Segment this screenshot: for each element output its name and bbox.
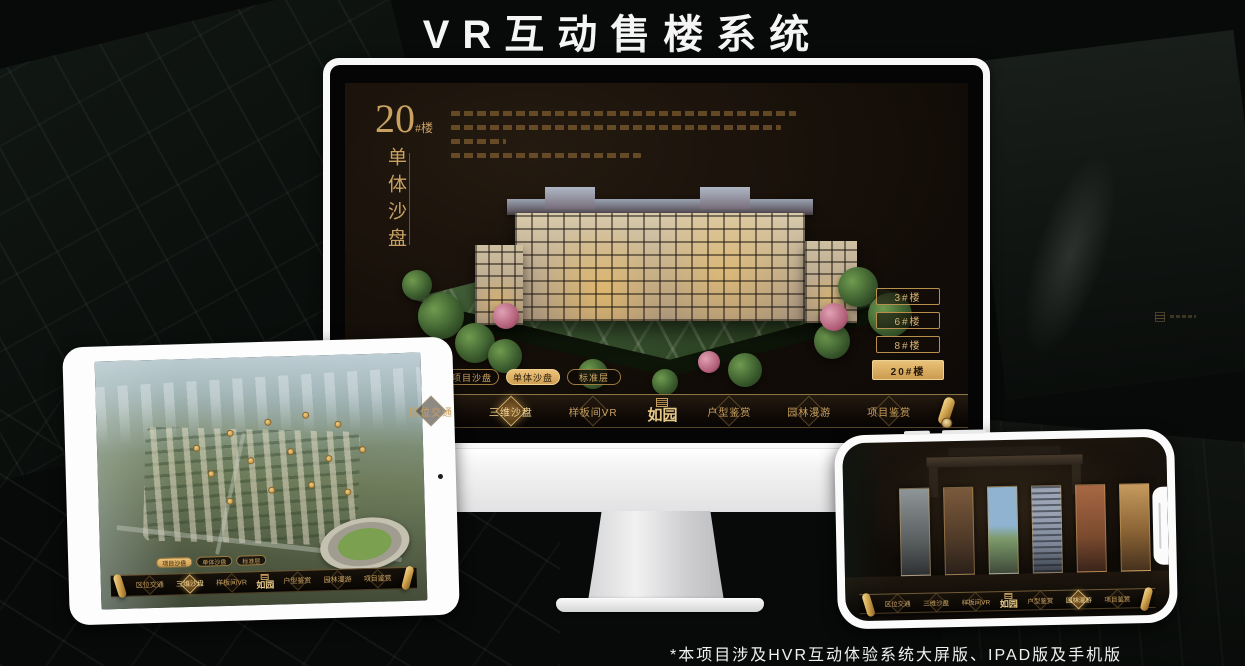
tree <box>728 353 762 387</box>
phone-notch <box>1152 487 1169 565</box>
building-button-6[interactable]: 6#楼 <box>876 312 940 329</box>
gallery-panel[interactable] <box>1119 483 1151 572</box>
nav-item-garden-roam[interactable]: 园林漫游 <box>1063 593 1095 606</box>
building-number-suffix: #楼 <box>415 121 433 135</box>
gallery-panel[interactable] <box>899 488 931 577</box>
gallery-panel[interactable] <box>943 487 975 576</box>
nav-item-3d-sandbox[interactable]: 三维沙盘 <box>483 402 539 421</box>
brand-logo: 如园 <box>647 398 677 424</box>
page-title: VR互动售楼系统 <box>0 2 1245 60</box>
gate-column <box>929 467 939 497</box>
nav-item-3d-sandbox[interactable]: 三维沙盘 <box>173 578 207 591</box>
tab-single-sandbox[interactable]: 单体沙盘 <box>506 369 560 385</box>
poster-canvas: VR互动售楼系统 20#楼 单体沙盘 <box>0 0 1245 666</box>
nav-item-location-traffic[interactable]: 区位交通 <box>133 579 167 592</box>
scroll-menu-icon[interactable] <box>937 396 956 426</box>
scroll-end-icon <box>112 573 127 598</box>
brand-logo-text: 如园 <box>647 408 677 424</box>
building-button-20[interactable]: 20#楼 <box>872 360 944 380</box>
tablet-mockup: 项目沙盘 单体沙盘 标准层 区位交通 三维沙盘 样板间VR 如园 户型鉴赏 园林… <box>62 337 460 626</box>
nav-item-floorplan[interactable]: 户型鉴赏 <box>280 575 314 588</box>
roof-tower <box>545 187 595 209</box>
gallery-panel[interactable] <box>987 486 1019 575</box>
nav-item-location-traffic[interactable]: 区位交通 <box>881 597 913 610</box>
footnote-text: *本项目涉及HVR互动体验系统大屏版、IPAD版及手机版 <box>670 641 1122 665</box>
nav-item-showroom-vr[interactable]: 样板间VR <box>959 595 994 608</box>
brand-logo: 如园 <box>1000 593 1018 609</box>
scroll-end-icon <box>1140 586 1154 611</box>
tablet-screen: 项目沙盘 单体沙盘 标准层 区位交通 三维沙盘 样板间VR 如园 户型鉴赏 园林… <box>95 352 428 609</box>
nav-item-floorplan[interactable]: 户型鉴赏 <box>1024 594 1056 607</box>
monitor-stand <box>588 511 724 601</box>
tab-standard-floor[interactable]: 标准层 <box>236 555 266 566</box>
phone-mockup: 区位交通 三维沙盘 样板间VR 如园 户型鉴赏 园林漫游 项目鉴赏 <box>834 428 1178 629</box>
gallery-panel[interactable] <box>1075 484 1107 573</box>
nav-item-garden-roam[interactable]: 园林漫游 <box>320 573 354 586</box>
estate-buildings <box>142 427 360 546</box>
phone-screen: 区位交通 三维沙盘 样板间VR 如园 户型鉴赏 园林漫游 项目鉴赏 <box>842 437 1170 622</box>
scroll-end-icon <box>861 592 876 617</box>
tree <box>402 270 432 300</box>
tree <box>652 369 678 395</box>
building-button-8[interactable]: 8#楼 <box>876 336 940 353</box>
description-line <box>451 139 506 144</box>
nav-item-location-traffic[interactable]: 区位交通 <box>403 402 459 421</box>
brand-logo-text: 如园 <box>1000 599 1018 609</box>
description-line <box>451 153 641 158</box>
building-button-3[interactable]: 3#楼 <box>876 288 940 305</box>
description-line <box>451 111 796 116</box>
building-selector: 3#楼 6#楼 8#楼 20#楼 <box>868 288 948 380</box>
tab-project-sandbox[interactable]: 项目沙盘 <box>156 557 192 568</box>
description-line <box>451 125 781 130</box>
building-number: 20 <box>375 96 415 141</box>
nav-item-showroom-vr[interactable]: 样板间VR <box>213 576 250 589</box>
description-paragraph <box>451 111 796 158</box>
seal-icon <box>656 398 668 407</box>
background-gold-text <box>1170 315 1196 318</box>
flowering-tree <box>698 351 720 373</box>
flowering-tree <box>493 303 519 329</box>
tree <box>488 339 522 373</box>
nav-item-project-view[interactable]: 项目鉴赏 <box>861 402 917 421</box>
nav-item-garden-roam[interactable]: 园林漫游 <box>781 402 837 421</box>
nav-item-showroom-vr[interactable]: 样板间VR <box>563 402 624 421</box>
background-gold-logo <box>1155 312 1165 322</box>
phone-speaker-icon <box>1158 503 1161 549</box>
monitor-base <box>556 598 764 612</box>
building-facade <box>515 213 805 321</box>
scroll-end-icon <box>401 565 415 590</box>
roof-tower <box>700 187 750 209</box>
tablet-camera-icon <box>438 474 443 479</box>
nav-item-project-view[interactable]: 项目鉴赏 <box>361 572 395 585</box>
nav-item-floorplan[interactable]: 户型鉴赏 <box>701 402 757 421</box>
brand-logo: 如园 <box>256 574 274 590</box>
tab-standard-floor[interactable]: 标准层 <box>567 369 621 385</box>
brand-logo-text: 如园 <box>256 580 274 590</box>
phone-power-button <box>942 429 986 434</box>
building-headline: 20#楼 <box>375 99 433 139</box>
nav-item-3d-sandbox[interactable]: 三维沙盘 <box>920 596 952 609</box>
phone-volume-button <box>904 431 930 436</box>
nav-item-project-view[interactable]: 项目鉴赏 <box>1101 592 1133 605</box>
flowering-tree <box>820 303 848 331</box>
view-tabs: 项目沙盘 单体沙盘 标准层 <box>445 369 621 385</box>
gallery-panel[interactable] <box>1031 485 1063 574</box>
tab-single-sandbox[interactable]: 单体沙盘 <box>196 556 232 567</box>
